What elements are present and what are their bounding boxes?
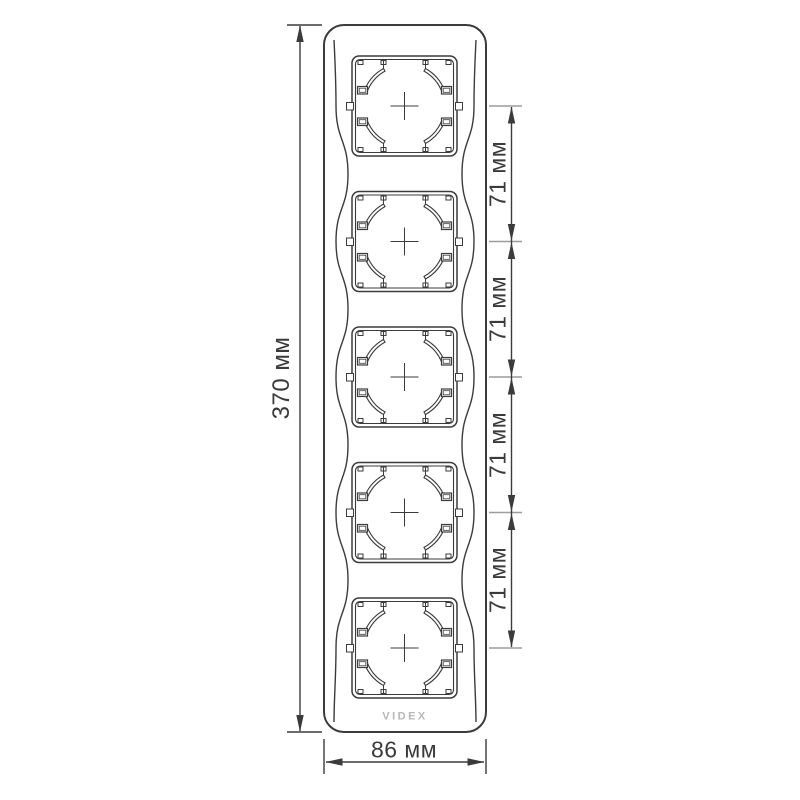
arrowhead-down xyxy=(508,360,515,377)
spacing-dimension-label-4: 71 мм xyxy=(487,547,510,613)
spacing-dimension-label-3: 71 мм xyxy=(487,412,510,478)
frame-contour-left xyxy=(334,40,348,722)
dimension-drawing xyxy=(0,0,800,800)
arrowhead-up xyxy=(508,378,515,395)
arrowhead-up xyxy=(508,513,515,530)
height-dimension-label: 370 мм xyxy=(270,337,294,420)
arrowhead-down xyxy=(296,715,303,732)
arrowhead-up xyxy=(508,242,515,259)
brand-logo: VIDEX xyxy=(382,712,428,723)
arrowhead-up xyxy=(296,25,303,42)
socket-window-4 xyxy=(347,463,463,563)
arrowhead-down xyxy=(508,224,515,241)
socket-window-1 xyxy=(347,56,463,156)
spacing-dimension-label-2: 71 мм xyxy=(487,276,510,342)
spacing-dimension-label-1: 71 мм xyxy=(487,141,510,207)
arrowhead-right xyxy=(468,758,485,765)
arrowhead-down xyxy=(508,495,515,512)
arrowhead-down xyxy=(508,631,515,648)
width-dimension-label: 86 мм xyxy=(371,739,437,762)
arrowhead-up xyxy=(508,107,515,124)
socket-window-5 xyxy=(347,598,463,698)
arrowhead-left xyxy=(326,758,343,765)
socket-window-2 xyxy=(347,192,463,292)
frame-contour-right xyxy=(462,40,476,722)
socket-window-3 xyxy=(347,327,463,427)
